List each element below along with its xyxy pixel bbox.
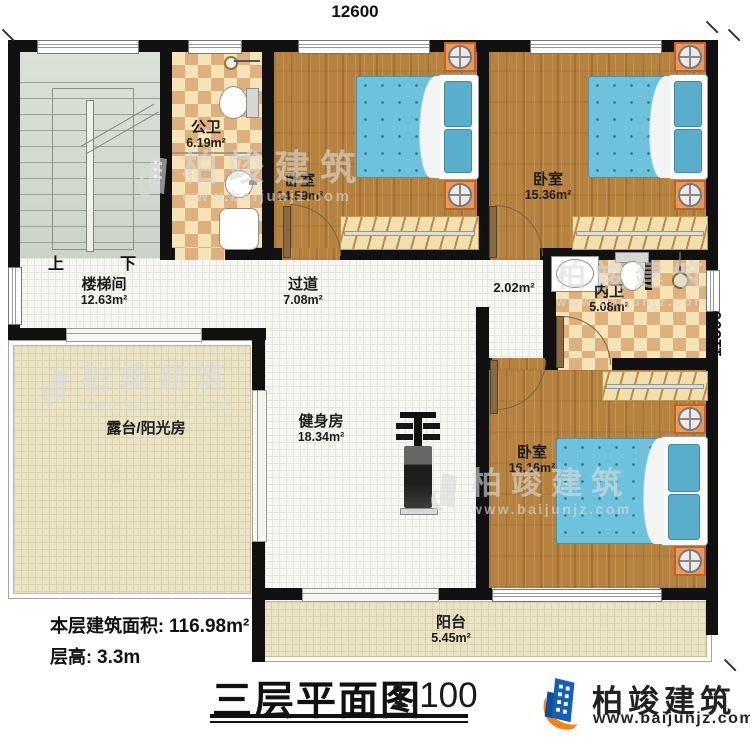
room-area: 5.45m² [431,631,471,645]
shower-tray [219,208,259,250]
room-name: 卧室 [277,172,324,189]
dimension-tick [705,21,718,34]
room-name: 健身房 [298,413,345,430]
wall-gym-bedroom3 [476,307,489,600]
room-name: 卧室 [509,444,556,461]
room-area: 7.08m² [283,293,323,307]
floor-area-note: 本层建筑面积: 116.98m² [50,612,249,638]
pillow [674,81,702,127]
stairs-up-label: 上 [48,250,64,274]
room-name: 楼梯间 [81,276,128,293]
threshold-public-bath [172,248,228,260]
wardrobe [602,371,708,401]
room-area: 15.36m² [525,188,572,202]
wall-seg [252,588,302,600]
shower-head-icon [672,272,689,289]
blanket [649,76,670,178]
shower-rod [679,252,681,274]
toilet [219,86,248,119]
bed [660,436,708,546]
room-terrace-floor [13,345,251,594]
nightstand [674,180,706,210]
bed [668,74,708,180]
window [37,40,139,54]
nightstand [444,42,476,72]
lamp-icon [678,549,702,573]
wall-bath-bedroom1 [262,40,274,258]
sliding-door [302,588,439,602]
window [530,40,662,54]
room-label-closet: 2.02m² [493,281,534,296]
room-area: 5.08m² [589,300,629,314]
room-name: 内卫 [589,283,629,300]
lamp-icon [678,45,702,69]
wall-seg [660,588,718,600]
toilet-tank [246,88,259,118]
room-closet-floor [487,258,543,358]
lamp-icon [448,45,472,69]
pillow [444,81,472,127]
sliding-door [252,390,267,542]
room-label-bedroom1: 卧室 14.59m² [277,172,324,204]
room-label-gym: 健身房 18.34m² [298,413,345,445]
room-label-public-bath: 公卫 6.19m² [186,119,226,151]
company-logo: 柏竣建筑 www.baijunjz.com [534,672,744,736]
wall-seg [612,358,706,370]
balcony-railing [258,598,712,662]
nightstand [674,42,706,72]
treadmill-bar [423,434,440,440]
room-name: 阳台 [431,614,471,631]
window [188,40,242,54]
floor-height-value: 3.3m [97,647,140,668]
wall-balcony-right [706,600,718,635]
towel-ring-icon [224,56,238,70]
nightstand [674,546,706,576]
room-label-ensuite: 内卫 5.08m² [589,283,629,315]
room-name: 卧室 [525,171,572,188]
window [8,267,22,325]
room-stairwell-floor [20,52,160,258]
nightstand [444,180,476,210]
title-underline [210,714,468,718]
room-area: 18.34m² [298,430,345,444]
room-name: 公卫 [186,119,226,136]
room-name: 过道 [283,276,323,293]
room-label-hallway: 过道 7.08m² [283,276,323,308]
treadmill-bar [396,434,413,440]
lamp-icon [678,183,702,207]
room-balcony-floor [263,601,707,657]
plan-scale: 1:100 [390,676,478,716]
mattress [588,76,670,178]
title-underline [210,721,468,723]
wall-seg [252,328,265,390]
lamp-icon [448,183,472,207]
treadmill-deck [404,446,432,508]
wardrobe [572,216,708,250]
floor-area-label: 本层建筑面积: [50,616,164,636]
towel-bar [234,60,260,62]
room-label-terrace: 露台/阳光房 [106,420,185,437]
room-gym-floor [265,330,477,588]
terrace-railing [8,340,256,599]
wall-seg [160,248,175,260]
room-area: 12.63m² [81,293,128,307]
floor-height-note: 层高: 3.3m [50,643,140,669]
pillow [444,129,472,173]
company-logo-url: www.baijunjz.com [593,710,750,728]
sliding-door [66,328,202,342]
room-label-stairwell: 楼梯间 12.63m² [81,276,128,308]
dimension-tick [727,29,740,42]
stair-center-rail [86,100,94,252]
nightstand [674,404,706,434]
room-label-balcony: 阳台 5.45m² [431,614,471,646]
floor-height-label: 层高: [50,647,92,667]
pillow [668,494,700,540]
wall-seg [8,328,66,340]
wall-seg [437,588,492,600]
dimension-tick [723,659,736,672]
stairs-down-label: 下 [120,250,136,274]
room-name: 露台/阳光房 [106,420,185,437]
floor-plan: 公卫 6.19m² 卧室 14.59m² 卧室 15.36m² 楼梯间 12.6… [0,0,750,743]
treadmill-bar [423,423,440,429]
dimension-top-label: 12600 [300,2,410,22]
treadmill-stem [414,412,422,446]
pillow [668,444,700,492]
window [492,589,662,602]
wall-stair-bath [160,40,172,258]
bed [437,74,479,180]
basin-tap [249,180,257,185]
treadmill-foot [400,508,438,515]
room-area: 6.19m² [186,136,226,150]
company-logo-icon [534,674,586,732]
floor-area-value: 116.98m² [169,616,249,637]
window [298,40,430,54]
treadmill [396,408,440,516]
pillow [674,129,702,173]
room-area: 16.16m² [509,461,556,475]
blanket [419,76,440,178]
room-area: 2.02m² [493,281,534,296]
mattress [556,438,664,544]
wall-balcony-left [252,600,265,662]
treadmill-bar [396,423,413,429]
blanket [643,438,664,544]
bath-partition [172,152,262,154]
room-label-bedroom2: 卧室 15.36m² [525,171,572,203]
room-area: 14.59m² [277,189,324,203]
wardrobe [340,216,479,250]
room-label-bedroom3: 卧室 16.16m² [509,444,556,476]
lamp-icon [678,407,702,431]
dimension-right-label: 11500 [706,295,728,373]
mattress [356,76,440,178]
